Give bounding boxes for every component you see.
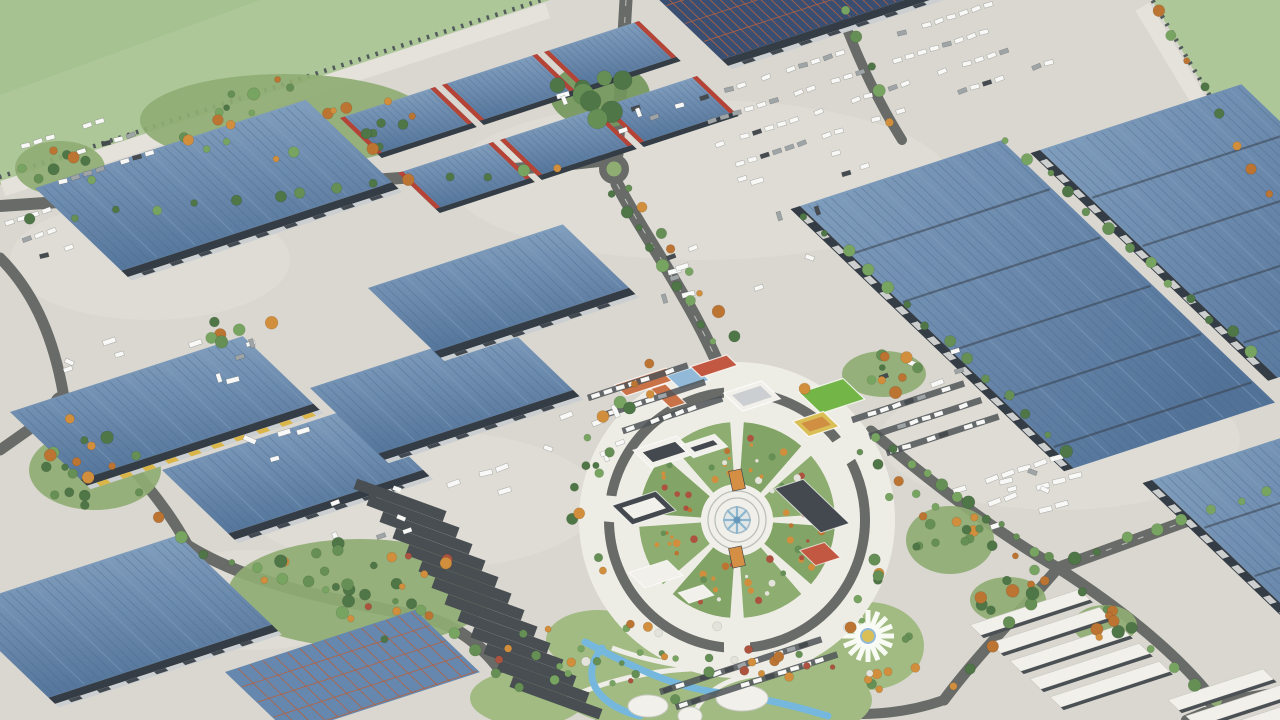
rendered-scene-canvas xyxy=(0,0,1280,720)
haze-overlay xyxy=(0,0,1280,720)
aerial-industrial-park-rendering xyxy=(0,0,1280,720)
